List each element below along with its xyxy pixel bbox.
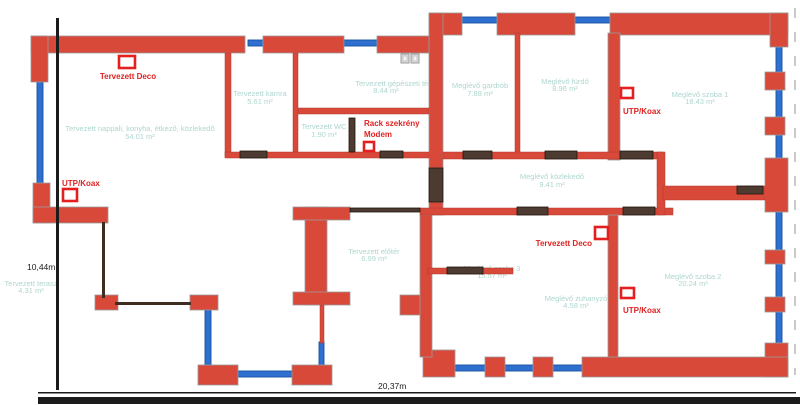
fixture-icon-a[interactable] — [401, 54, 409, 63]
room-area-eloter: 6.99 m² — [361, 254, 387, 263]
window — [319, 342, 324, 366]
door-opening — [463, 151, 492, 159]
door-opening — [349, 118, 355, 152]
wall-segment — [263, 36, 344, 53]
fixture-icons[interactable] — [401, 54, 419, 63]
wall-segment — [292, 365, 332, 385]
wall-pillar — [765, 250, 785, 264]
wall-segment — [198, 365, 238, 385]
room-area-gardrob: 7.88 m² — [467, 89, 493, 98]
wall-segment — [33, 207, 108, 223]
room-area-szoba1: 18.43 m² — [685, 97, 715, 106]
walls — [31, 13, 788, 385]
wall-segment — [497, 13, 575, 35]
width-dimension-line — [38, 392, 796, 394]
wall-segment — [320, 305, 324, 343]
window — [776, 45, 782, 160]
room-area-kamra: 5.61 m² — [247, 97, 273, 106]
rack-modem-marker[interactable] — [364, 142, 374, 151]
wall-pillar — [533, 357, 553, 377]
door-opening — [240, 151, 267, 158]
door-opening — [517, 207, 548, 215]
utp-koax-marker-1[interactable] — [63, 189, 77, 201]
door-opening — [447, 267, 483, 274]
window — [462, 17, 497, 23]
utp-koax-label-2: UTP/Koax — [623, 107, 661, 116]
wall-segment — [765, 158, 788, 212]
wall-pillar — [765, 72, 785, 90]
wall-segment — [582, 357, 788, 377]
wall-segment — [429, 13, 443, 168]
room-area-furdo: 8.96 m² — [552, 84, 578, 93]
terrace-railing — [102, 222, 191, 305]
window — [37, 80, 43, 184]
room-area-wc: 1.90 m² — [311, 130, 337, 139]
height-dimension-line — [56, 18, 59, 390]
width-dimension-label: 20,37m — [378, 381, 406, 391]
room-area-terasz: 4.31 m² — [18, 286, 44, 295]
wall-pillar — [400, 295, 420, 315]
utp-koax-marker-3[interactable] — [621, 288, 634, 298]
wall-segment — [305, 207, 327, 305]
window — [238, 371, 292, 377]
door-opening — [380, 151, 403, 158]
wall-segment — [608, 33, 620, 160]
wall-pillar — [765, 117, 785, 135]
wall-segment — [770, 13, 788, 47]
door-opening — [737, 186, 763, 194]
deco-marker-2[interactable] — [595, 227, 608, 239]
deco-marker-1[interactable] — [119, 56, 135, 68]
utp-koax-label-3: UTP/Koax — [623, 306, 661, 315]
baseline-bar — [38, 397, 800, 404]
wall-pillar — [765, 297, 785, 312]
room-area-kozlekedo: 9.41 m² — [539, 180, 565, 189]
wall-segment — [657, 152, 665, 215]
floor-plan-svg: Tervezett nappali, konyha, étkező, közle… — [0, 0, 800, 405]
wall-segment — [293, 292, 350, 305]
wall-segment — [610, 13, 788, 35]
railing-line — [102, 222, 105, 298]
wall-pillar — [485, 357, 505, 377]
wall-segment — [190, 295, 218, 310]
wall-segment — [298, 108, 429, 114]
window — [205, 310, 211, 367]
window — [455, 365, 583, 371]
rack-label-line2: Modem — [364, 130, 392, 139]
wall-segment — [293, 207, 350, 220]
door-opening — [429, 168, 443, 202]
room-area-zuhanyzo: 4.58 m² — [563, 301, 589, 310]
floor-plan-canvas: Tervezett nappali, konyha, étkező, közle… — [0, 0, 800, 405]
railing-line — [115, 302, 191, 305]
window — [344, 40, 377, 46]
window — [575, 17, 610, 23]
rack-label-line1: Rack szekrény — [364, 119, 420, 128]
wall-segment — [95, 295, 118, 310]
door-opening — [350, 208, 420, 212]
wall-segment — [608, 215, 618, 357]
height-dimension-label: 10,44m — [27, 262, 55, 272]
deco-label-1: Tervezett Deco — [100, 72, 156, 81]
window — [776, 210, 782, 345]
wall-segment — [31, 36, 48, 82]
wall-segment — [31, 36, 245, 53]
door-opening — [620, 151, 653, 159]
wall-segment — [377, 36, 429, 53]
wall-segment — [293, 53, 298, 152]
wall-segment — [225, 53, 231, 157]
room-area-szoba2: 20.24 m² — [678, 279, 708, 288]
wall-segment — [515, 33, 520, 153]
door-opening — [623, 207, 655, 215]
wall-segment — [420, 215, 432, 357]
utp-koax-label-1: UTP/Koax — [62, 179, 100, 188]
door-opening — [545, 151, 577, 159]
room-area-nappali: 54.01 m² — [125, 132, 155, 141]
deco-label-2: Tervezett Deco — [536, 239, 592, 248]
room-area-gepeszeti: 8.44 m² — [373, 86, 399, 95]
fixture-icon-b[interactable] — [411, 54, 419, 63]
utp-koax-marker-2[interactable] — [621, 88, 633, 98]
